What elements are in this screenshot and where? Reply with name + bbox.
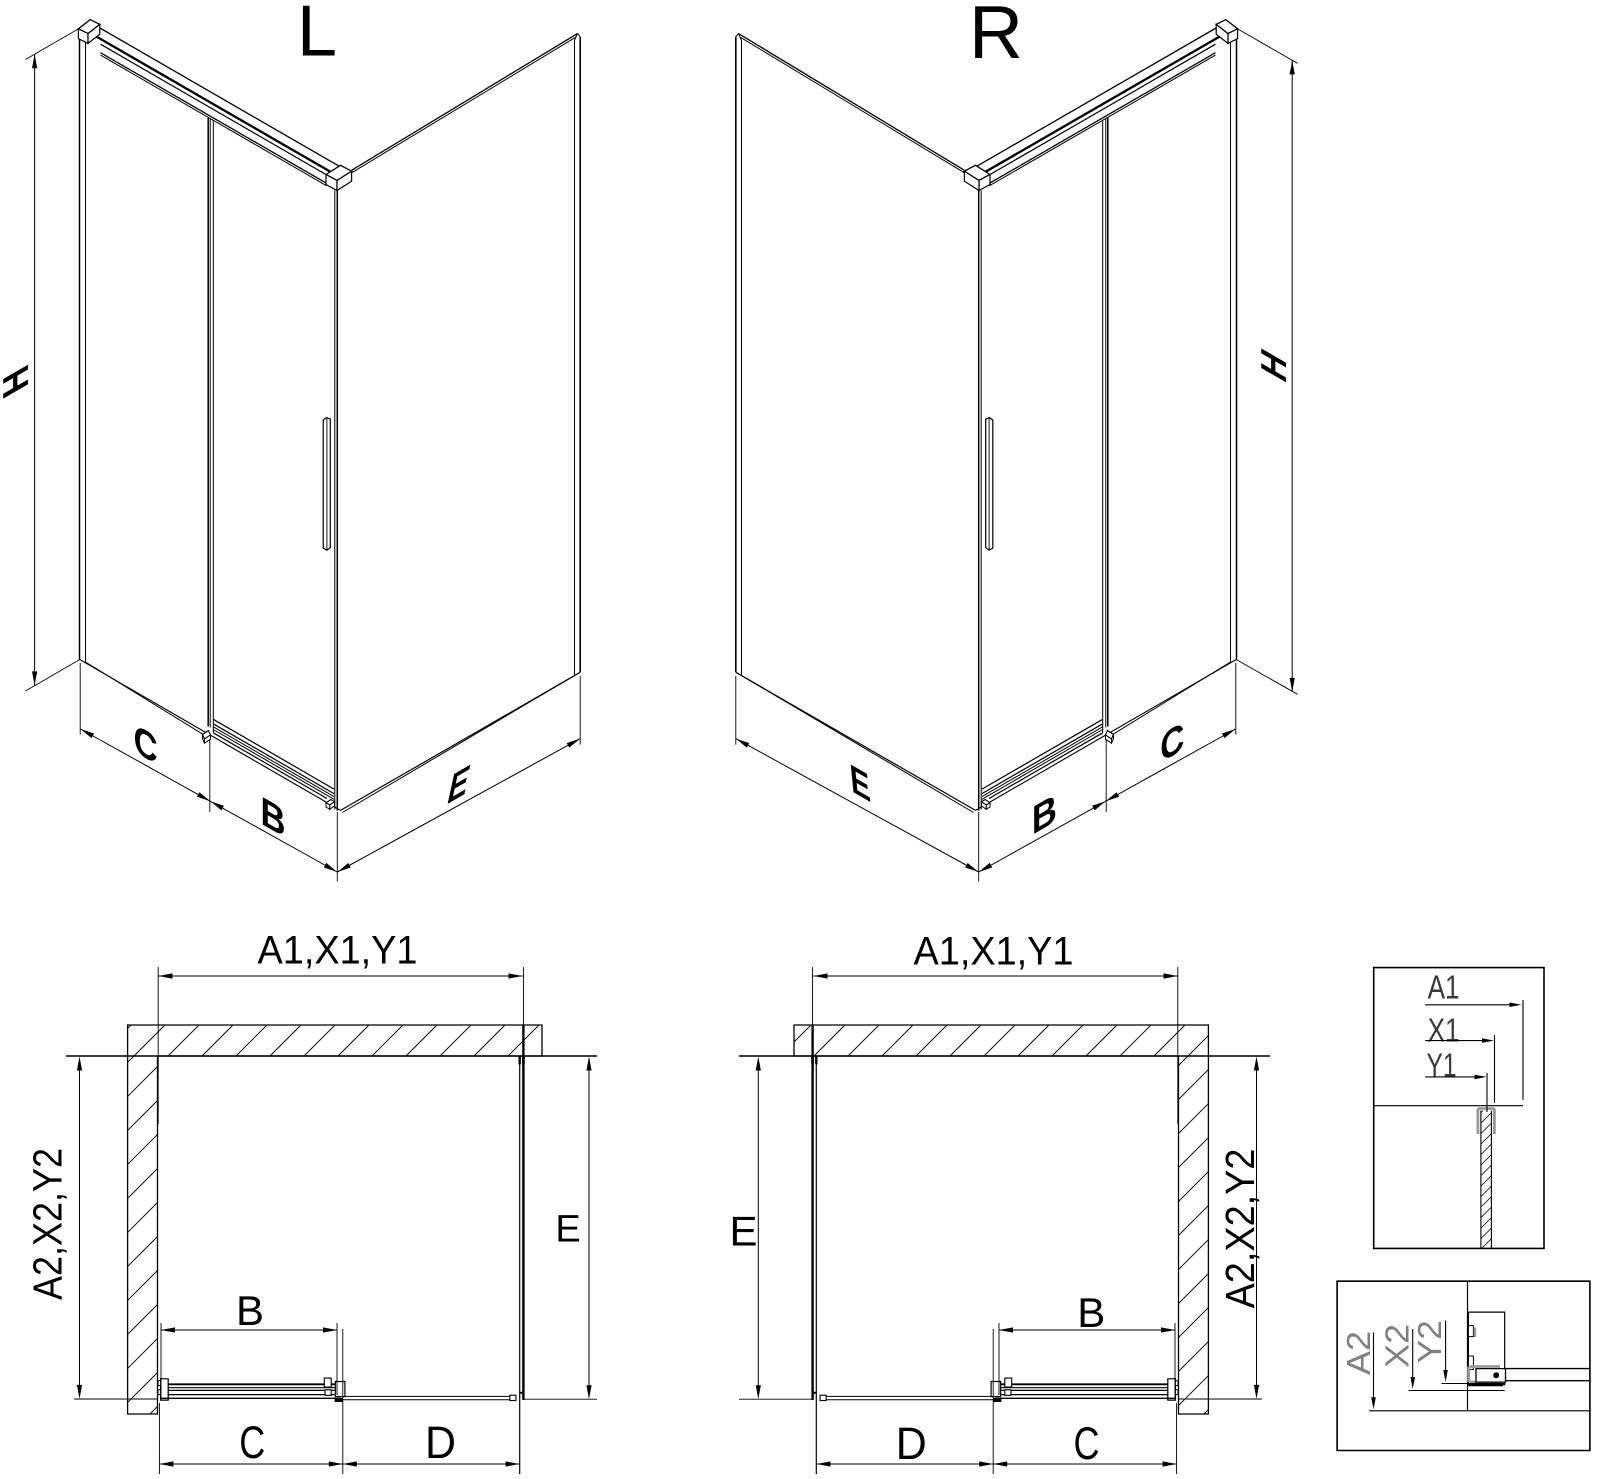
svg-text:A2: A2 — [1340, 1331, 1377, 1375]
svg-text:E: E — [729, 1208, 757, 1255]
svg-text:Y1: Y1 — [1427, 1047, 1457, 1084]
svg-text:D: D — [896, 1418, 927, 1469]
svg-text:A1,X1,Y1: A1,X1,Y1 — [914, 929, 1074, 973]
svg-text:X1: X1 — [1428, 1011, 1460, 1048]
svg-text:B: B — [1077, 1289, 1105, 1336]
svg-text:D: D — [425, 1417, 456, 1468]
svg-text:C: C — [239, 1417, 265, 1468]
svg-text:A2,X2,Y2: A2,X2,Y2 — [24, 1148, 70, 1300]
svg-text:L: L — [297, 0, 337, 71]
svg-text:A2,X2,Y2: A2,X2,Y2 — [1217, 1149, 1263, 1309]
svg-text:Y2: Y2 — [1411, 1320, 1448, 1363]
svg-text:C: C — [1074, 1418, 1100, 1469]
svg-text:A1,X1,Y1: A1,X1,Y1 — [258, 928, 418, 972]
svg-text:E: E — [555, 1209, 580, 1251]
svg-text:B: B — [236, 1287, 264, 1334]
svg-text:R: R — [969, 0, 1023, 74]
svg-text:A1: A1 — [1428, 968, 1460, 1005]
